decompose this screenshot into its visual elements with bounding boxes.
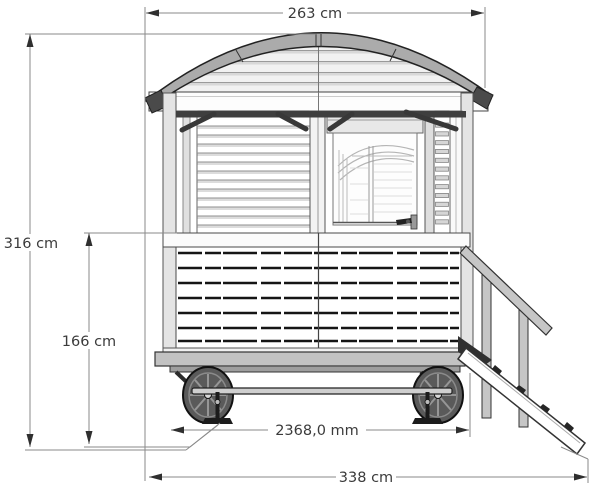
lower-slat-wall <box>163 233 470 354</box>
door-opening <box>325 111 425 235</box>
dim-label-chassis-length: 2368,0 mm <box>275 423 359 439</box>
dim-overall-length: 338 cm <box>149 447 588 486</box>
dim-label-roof-width: 263 cm <box>288 6 342 22</box>
dim-label-floor-height: 166 cm <box>62 334 116 350</box>
corner-post-right <box>461 93 473 355</box>
center-post <box>310 111 325 235</box>
side-wall-slats <box>434 117 450 235</box>
wheel-right <box>413 367 463 423</box>
wall-header-beam <box>149 92 488 111</box>
axle <box>192 388 452 394</box>
wagon-front-elevation-drawing: 263 cm 316 cm 166 cm 2368,0 mm <box>0 0 600 490</box>
technical-drawing-page: 263 cm 316 cm 166 cm 2368,0 mm <box>0 0 600 490</box>
top-rail <box>163 233 470 247</box>
dim-label-overall-length: 338 cm <box>339 470 393 486</box>
opening-jamb-post <box>425 111 434 235</box>
ramp-cleats <box>492 365 574 432</box>
left-siding-panel <box>197 117 310 235</box>
handrail <box>460 246 552 335</box>
dim-label-overall-height: 316 cm <box>4 236 58 252</box>
corner-post-left <box>163 93 176 355</box>
wheel-left <box>183 367 233 423</box>
